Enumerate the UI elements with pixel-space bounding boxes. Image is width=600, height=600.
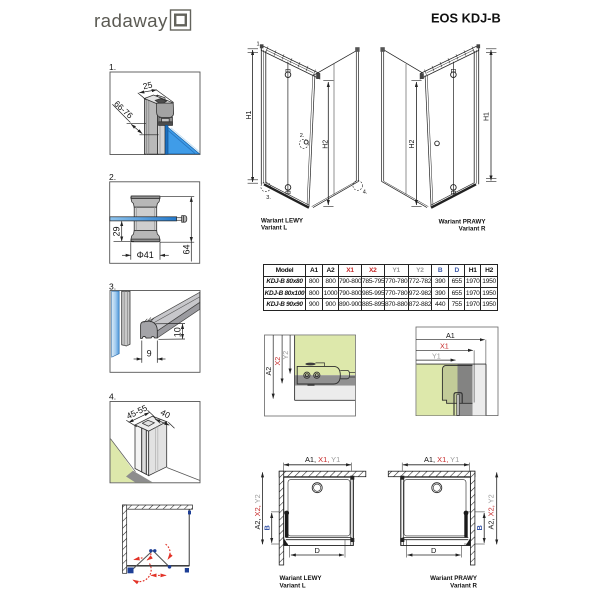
- svg-text:29: 29: [111, 226, 121, 236]
- svg-text:H2: H2: [409, 139, 416, 148]
- svg-text:A2: A2: [264, 367, 273, 376]
- svg-text:Variant R: Variant R: [450, 582, 477, 589]
- svg-text:3.: 3.: [109, 282, 116, 292]
- svg-text:D: D: [431, 546, 436, 555]
- svg-text:A1: A1: [446, 331, 455, 340]
- svg-text:H2: H2: [323, 140, 330, 149]
- svg-text:Y2: Y2: [281, 351, 290, 360]
- svg-text:3.: 3.: [266, 195, 271, 201]
- svg-text:H1: H1: [246, 110, 253, 119]
- svg-text:9: 9: [147, 349, 152, 359]
- svg-text:2.: 2.: [300, 133, 305, 139]
- svg-text:Variant R: Variant R: [459, 226, 486, 233]
- svg-text:10: 10: [172, 327, 182, 337]
- svg-text:H1: H1: [484, 112, 491, 121]
- svg-text:X1: X1: [440, 342, 449, 351]
- svg-text:B: B: [263, 525, 272, 530]
- svg-text:D: D: [315, 546, 320, 555]
- svg-text:A1, X1, Y1: A1, X1, Y1: [305, 455, 340, 464]
- svg-text:Variant L: Variant L: [280, 582, 306, 589]
- svg-text:1.: 1.: [109, 62, 116, 72]
- svg-text:A1, X1, Y1: A1, X1, Y1: [424, 455, 459, 464]
- svg-text:Wariant PRAWY: Wariant PRAWY: [430, 575, 478, 582]
- svg-text:A2, X2, Y2: A2, X2, Y2: [486, 494, 495, 529]
- svg-text:64: 64: [181, 244, 191, 254]
- svg-text:Wariant PRAWY: Wariant PRAWY: [439, 219, 487, 226]
- svg-text:A2, X2, Y2: A2, X2, Y2: [253, 494, 262, 529]
- svg-text:B: B: [475, 525, 484, 530]
- svg-text:Wariant LEWY: Wariant LEWY: [261, 218, 304, 225]
- svg-text:4.: 4.: [109, 392, 116, 402]
- svg-text:radaway: radaway: [94, 10, 168, 31]
- svg-text:Φ41: Φ41: [137, 250, 154, 260]
- svg-text:2.: 2.: [109, 172, 116, 182]
- svg-text:Y1: Y1: [432, 351, 441, 360]
- svg-text:EOS KDJ-B: EOS KDJ-B: [431, 10, 501, 25]
- svg-text:Variant L: Variant L: [261, 225, 287, 232]
- svg-text:Wariant LEWY: Wariant LEWY: [280, 575, 323, 582]
- svg-text:4.: 4.: [363, 190, 368, 196]
